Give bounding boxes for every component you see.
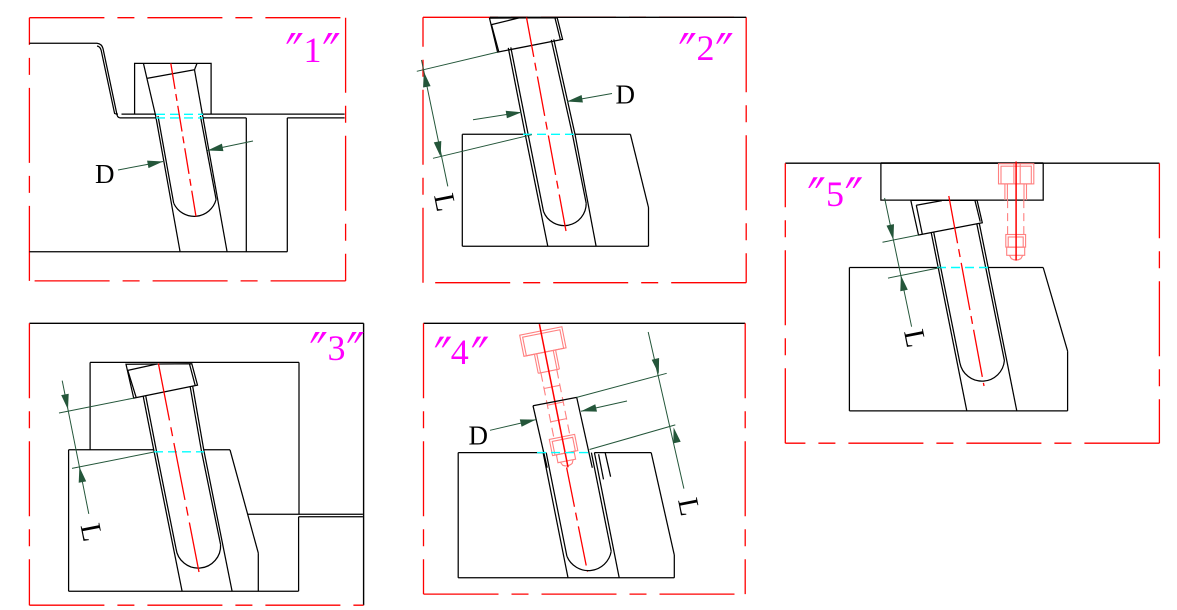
svg-text:D: D <box>469 421 489 451</box>
svg-text:2: 2 <box>697 28 715 68</box>
svg-text:4: 4 <box>451 332 469 372</box>
svg-text:1: 1 <box>304 30 322 70</box>
svg-text:3: 3 <box>328 328 346 368</box>
svg-text:D: D <box>95 159 115 189</box>
svg-text:5: 5 <box>826 174 844 214</box>
svg-text:D: D <box>616 80 636 110</box>
